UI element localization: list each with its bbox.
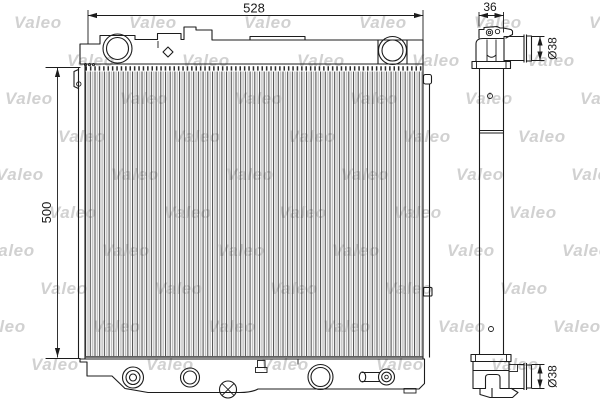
bottom-tank (80, 359, 425, 398)
brand-watermark: Valeo (580, 89, 600, 108)
opening-inner (311, 368, 330, 387)
diagram-canvas: ValeoValeoValeoValeoValeoValeoValeoValeo… (0, 0, 600, 400)
brand-watermark: Valeo (553, 317, 600, 336)
side-column (480, 69, 504, 355)
dim-arrow-right (414, 13, 423, 18)
core-fins (86, 72, 423, 357)
brand-watermark: Valeo (5, 89, 53, 108)
filler-neck-inner (107, 38, 129, 60)
brand-watermark: Valeo (376, 355, 424, 374)
brand-watermark: Valeo (500, 279, 548, 298)
bottom-opening-small (181, 368, 200, 387)
dim-bottom-pipe-label-wrap: Ø38 (546, 365, 560, 388)
dim-top-pipe-label: Ø38 (546, 37, 560, 60)
brand-watermark: Valeo (447, 241, 495, 260)
radiator-core (85, 64, 423, 359)
brand-watermark: Valeo (0, 317, 26, 336)
bottom-opening-large (308, 365, 333, 390)
top-flange-ticks (477, 62, 507, 69)
brand-watermark: Valeo (14, 13, 62, 32)
dim-bottom-pipe-label: Ø38 (546, 365, 560, 388)
top-mounting-plate (250, 37, 305, 41)
valve-ring-inner (385, 375, 389, 379)
front-view (74, 27, 432, 398)
grommet-ring-inner (130, 374, 137, 381)
dim-core-height-label-wrap: 500 (39, 202, 54, 224)
petcock-cross (222, 384, 233, 395)
brand-watermark: Valeo (261, 355, 309, 374)
dim-core-height-label: 500 (39, 202, 54, 224)
brand-watermark: Valeo (562, 241, 600, 260)
cap-pivot-inner (488, 31, 491, 34)
brand-watermark: Valeo (40, 279, 88, 298)
left-mount-grommet (123, 367, 144, 388)
brand-watermark: Valeo (571, 165, 600, 184)
column-joint (480, 131, 504, 134)
dim-arrow-top (55, 68, 60, 77)
radiator-technical-diagram: ValeoValeoValeoValeoValeoValeoValeoValeo… (0, 0, 600, 400)
filler-neck-tube (487, 40, 496, 62)
brand-watermark: Valeo (0, 241, 35, 260)
filler-neck-outer (103, 34, 132, 63)
diamond-port (163, 47, 173, 57)
dim-top-pipe-label-wrap: Ø38 (546, 37, 560, 60)
brand-watermark: Valeo (0, 165, 44, 184)
opening-outer (308, 365, 333, 390)
brand-watermark: Valeo (509, 203, 557, 222)
brand-watermark: Valeo (31, 355, 79, 374)
column-edges (480, 69, 504, 355)
side-top-assembly (472, 27, 532, 69)
column-hole-bottom (489, 327, 494, 332)
brand-watermark: Valeo (438, 317, 486, 336)
top-flange (472, 62, 511, 69)
dim-overall-width-label: 528 (243, 1, 265, 16)
dim-arrow-top (537, 37, 542, 46)
brand-watermark: Valeo (518, 127, 566, 146)
brand-watermark: Valeo (589, 13, 600, 32)
brand-watermark: Valeo (412, 51, 460, 70)
inlet-opening-inner (382, 40, 403, 61)
bottom-bracket (480, 389, 518, 398)
right-plate-top-tab (424, 75, 432, 85)
valve-tip (359, 372, 365, 382)
dim-arrow-left (88, 13, 97, 18)
brand-watermark: Valeo (146, 355, 194, 374)
top-tank (80, 27, 423, 66)
inlet-opening-outer (379, 37, 407, 65)
dim-depth-label: 36 (483, 0, 497, 14)
top-elbow-outline (476, 37, 524, 62)
grommet-ring-mid (126, 371, 140, 385)
drain-petcock (220, 381, 237, 398)
dim-arrow-bottom (537, 380, 542, 389)
